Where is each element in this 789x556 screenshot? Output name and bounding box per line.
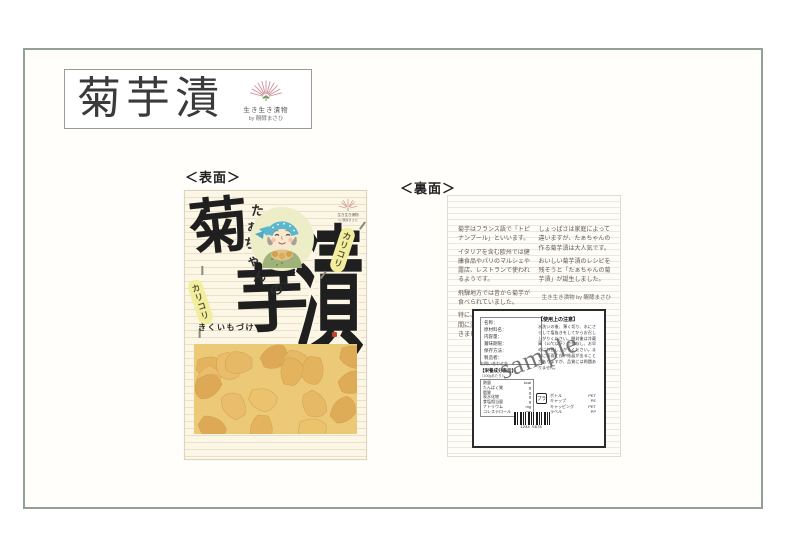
fan-sunburst-icon: [246, 77, 286, 103]
material-row: ラベルPP: [550, 409, 596, 414]
brand-logo: 生き生き漬物 by 醗酵まさひ: [230, 77, 302, 122]
kanji-kiku: 菊: [186, 194, 252, 260]
scanned-page: 菊芋漬 生き生き漬物 by 醗: [0, 0, 789, 556]
usage-notice-title: 【使用上の注意】: [538, 316, 578, 323]
product-info-table: 名称：原材料名：内容量：賞味期限：保存方法：製造者：: [480, 317, 542, 365]
karikori-bubble: カリコリ: [186, 278, 214, 326]
info-row: 原材料名：: [484, 327, 538, 334]
intro-paragraph: 飛騨地方では昔から菊芋が食べられていました。: [458, 290, 531, 309]
brand-credit: 生き生き漬物 by 醗酵まさひ: [539, 294, 612, 303]
intro-paragraph: しょっぱさは家庭によって違いますが、たぁちゃんの作る菊芋漬は大人気です。: [539, 226, 612, 254]
info-row: 賞味期限：: [484, 341, 538, 348]
info-row: 保存方法：: [484, 348, 538, 355]
info-row: 内容量：: [484, 334, 538, 341]
contact-line: お問い合わせ先: [480, 361, 508, 367]
front-package: 菊 芋 漬 た ぁ ち ゃ ん の: [184, 190, 367, 460]
page-title: 菊芋漬: [65, 77, 224, 121]
barcode-digits: 1234 5678: [512, 426, 550, 430]
brand-byline: by 醗酵まさひ: [338, 218, 357, 222]
usage-notice-body: 水洗いの後、薄く切り、水にさらして塩抜きをしてからお召し上がりください。開封後は…: [538, 324, 596, 370]
mini-brand-logo: 生き生き漬物 by 醗酵まさひ: [331, 197, 365, 222]
brand-byline: by 醗酵まさひ: [249, 114, 284, 122]
fan-sunburst-icon: [336, 197, 360, 212]
grandma-illustration: [249, 206, 315, 272]
front-side-label: ＜表面＞: [185, 167, 241, 186]
intro-paragraph: 菊芋はフランス語で「トピナンブール」といいます。: [458, 226, 531, 245]
nutrition-table: 熱量kcal たんぱく質g 脂質g 炭水化物g 食塩相当量g ナトリウムmg コ…: [480, 379, 534, 417]
material-list: ボトルPET キャップPE キャッピングPET ラベルPP: [550, 393, 596, 415]
taachan-char: の: [270, 283, 283, 296]
pickle-photo: [194, 344, 357, 434]
brand-name: 生き生き漬物: [244, 104, 289, 114]
plastic-recycle-icon: プラ: [536, 393, 547, 404]
page-border: 菊芋漬 生き生き漬物 by 醗: [23, 48, 763, 509]
barcode: [514, 412, 550, 425]
intro-paragraph: おいしい菊芋漬のレシピを残そうと「たぁちゃんの菊芋漬」が誕生しました。: [539, 258, 612, 286]
title-box: 菊芋漬 生き生き漬物 by 醗: [64, 69, 312, 129]
intro-paragraph: イタリアを含む欧州では健康食品やパリのマルシェや露店、レストランで使われるようで…: [458, 249, 531, 286]
product-label: 名称：原材料名：内容量：賞味期限：保存方法：製造者： お問い合わせ先 【栄養成分…: [472, 309, 606, 448]
hiragana-reading: きくいもづけ: [198, 322, 255, 333]
back-package: 菊芋はフランス語で「トピナンブール」といいます。イタリアを含む欧州では健康食品や…: [447, 195, 621, 457]
red-seal-stamp: [332, 332, 337, 337]
info-row: 名称：: [484, 320, 538, 327]
